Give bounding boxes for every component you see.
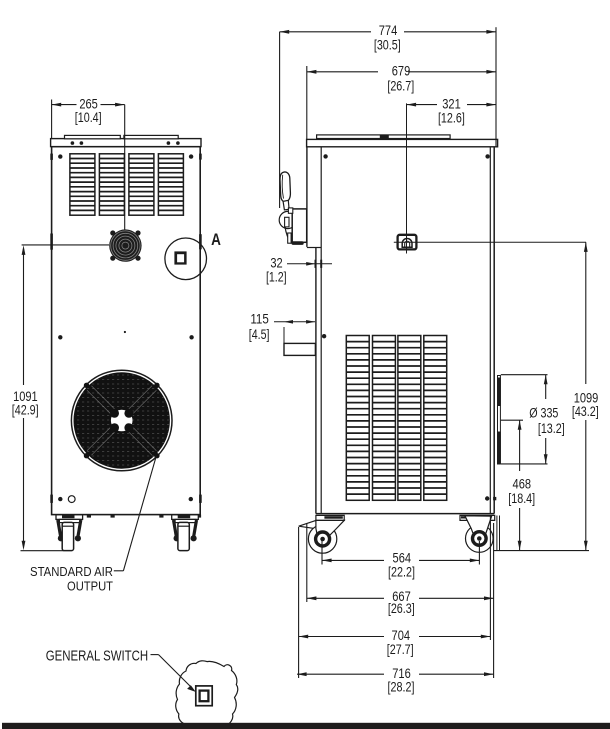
svg-text:[22.2]: [22.2] [388,564,415,580]
svg-text:[12.6]: [12.6] [438,111,465,127]
svg-text:[42.9]: [42.9] [12,403,39,419]
svg-text:[30.5]: [30.5] [374,37,401,53]
svg-text:GENERAL SWITCH: GENERAL SWITCH [46,648,149,664]
svg-text:679: 679 [392,64,411,80]
svg-text:[27.7]: [27.7] [387,642,414,658]
svg-text:[43.2]: [43.2] [572,404,599,420]
svg-text:[26.7]: [26.7] [387,78,414,94]
svg-text:STANDARD AIR: STANDARD AIR [30,564,113,579]
svg-text:[4.5]: [4.5] [249,327,270,343]
svg-text:[18.4]: [18.4] [508,491,535,507]
svg-text:[28.2]: [28.2] [388,680,415,696]
svg-text:[13.2]: [13.2] [538,421,565,437]
svg-text:Ø 335: Ø 335 [529,405,558,421]
svg-text:[1.2]: [1.2] [266,269,287,285]
svg-text:115: 115 [250,311,269,327]
svg-text:A: A [211,231,221,249]
svg-text:OUTPUT: OUTPUT [67,578,113,593]
svg-text:[26.3]: [26.3] [388,601,415,617]
svg-text:[10.4]: [10.4] [75,110,102,126]
